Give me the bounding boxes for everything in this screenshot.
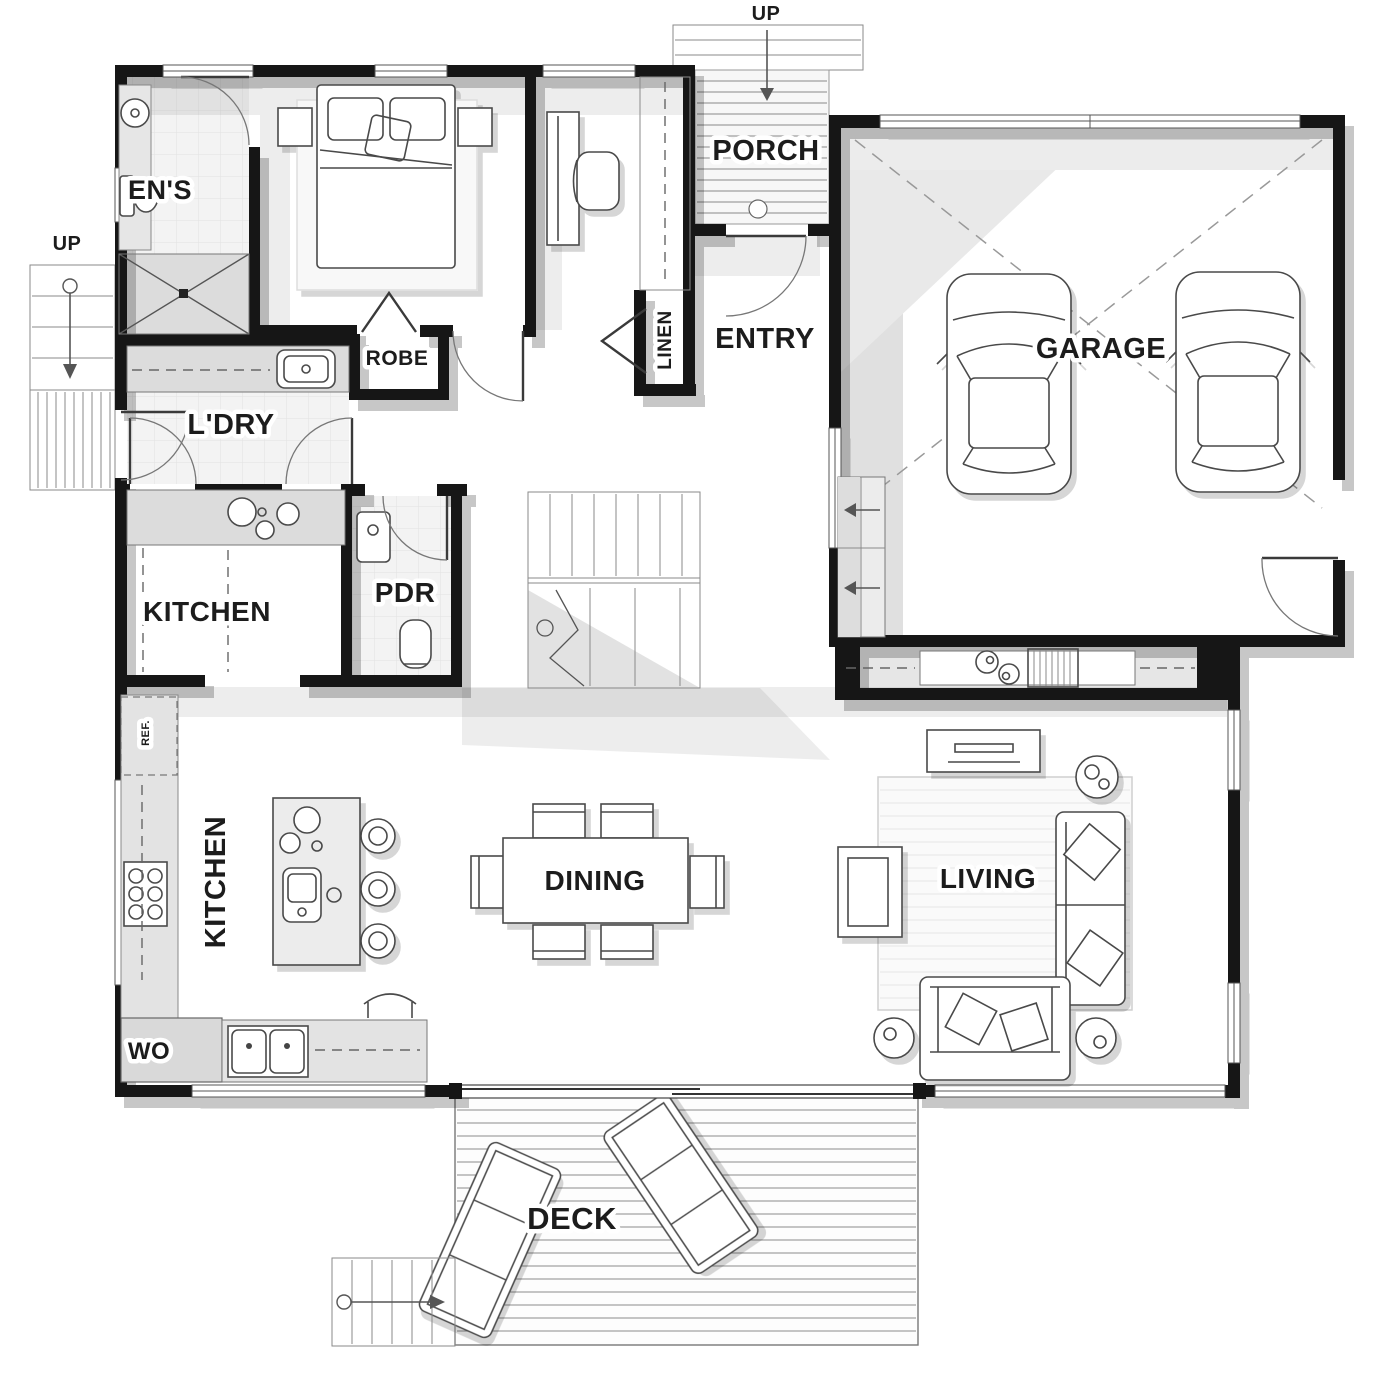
island	[273, 798, 395, 965]
label-deck: DECK	[527, 1201, 617, 1236]
label-up-porch: UP	[752, 3, 781, 25]
label-pdr: PDR	[375, 577, 436, 608]
understair-store	[838, 477, 885, 637]
label-fridge: REF.	[140, 720, 152, 746]
label-entry: ENTRY	[715, 323, 815, 355]
label-kitchen-upper: KITCHEN	[143, 596, 271, 627]
label-dining: DINING	[545, 865, 646, 896]
label-living: LIVING	[940, 863, 1036, 894]
label-porch: PORCH	[712, 135, 819, 167]
label-ensuite: EN'S	[128, 175, 192, 205]
bedroom	[278, 85, 492, 290]
label-up-side: UP	[53, 233, 82, 255]
label-robe: ROBE	[366, 347, 429, 370]
tv-unit	[927, 730, 1040, 772]
label-kitchen-main: KITCHEN	[200, 816, 232, 948]
living	[838, 730, 1132, 1080]
floor-plan: EN'S L'DRY ROBE LINEN PORCH ENTRY GARAGE…	[0, 0, 1400, 1400]
label-wall-oven: WO	[128, 1038, 170, 1065]
deck-slider-door	[449, 1083, 926, 1099]
sofa-2	[920, 977, 1070, 1080]
label-garage: GARAGE	[1036, 333, 1166, 365]
label-laundry: L'DRY	[187, 409, 274, 441]
car	[1166, 272, 1310, 492]
car	[937, 274, 1081, 494]
laundry	[127, 346, 349, 392]
label-linen: LINEN	[655, 310, 676, 370]
